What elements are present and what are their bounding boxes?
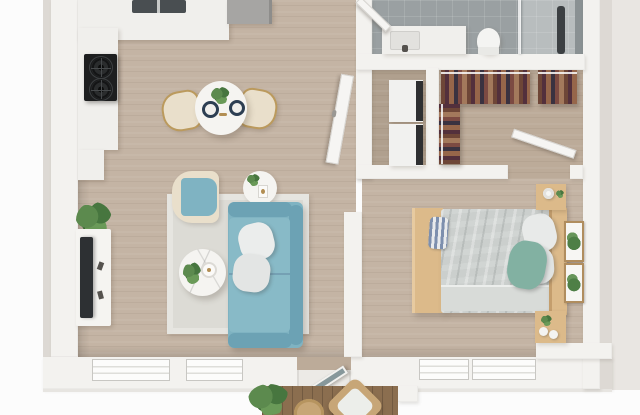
footboard-striped-cushion <box>428 216 449 249</box>
dryer-front-panel <box>416 125 423 165</box>
left-wall <box>51 0 78 357</box>
washer-front-panel <box>416 81 423 121</box>
closet-rack-top-2 <box>538 70 577 104</box>
hallway-door-handle <box>332 110 337 118</box>
nightstand-cup-2 <box>549 330 558 339</box>
toilet-tank <box>478 47 499 55</box>
vanity-faucet <box>402 45 408 52</box>
living-window-2 <box>186 359 243 381</box>
bedroom-window-2 <box>472 359 536 380</box>
framed-print-1 <box>564 221 584 262</box>
kitchen-lower-cabinet <box>78 150 104 180</box>
nightstand-lamp <box>543 188 554 199</box>
nightstand-top-plant <box>556 190 564 198</box>
coffee-table-plant <box>183 262 201 284</box>
living-window-1 <box>92 359 170 381</box>
hall-bath-left-wall <box>356 0 372 179</box>
left-wall-outer-edge <box>43 0 51 357</box>
closet-bedroom-wall <box>356 165 508 179</box>
nightstand-cup-1 <box>539 327 548 336</box>
gas-cooktop <box>84 54 117 101</box>
nightstand-bottom-plant <box>541 315 552 326</box>
exterior-background-right <box>610 0 640 390</box>
sofa-armrest-top <box>228 202 292 217</box>
shower-wall-strip <box>575 0 583 54</box>
kitchen-sink-divider <box>157 0 160 13</box>
shower-floor <box>520 0 583 54</box>
right-wall-outer-edge <box>600 0 612 389</box>
armchair-cushion <box>181 178 217 216</box>
cooktop-burner-2 <box>89 78 113 101</box>
dryer <box>389 124 423 166</box>
right-wall <box>583 0 600 389</box>
tv <box>80 237 93 318</box>
place-setting-right <box>229 100 245 116</box>
closet-rack-top-1 <box>441 70 530 104</box>
framed-print-2 <box>564 263 584 303</box>
balcony-plant <box>248 384 290 415</box>
closet-bedroom-wall-return <box>570 165 583 179</box>
shower-fixture-bar <box>557 6 565 54</box>
floorplan-render <box>0 0 640 415</box>
coffee-table-gold-dot <box>207 268 211 272</box>
bedroom-window-1 <box>419 359 469 380</box>
bottom-wall-floor-shadow <box>78 345 583 357</box>
sofa-backrest <box>289 205 303 345</box>
sofa-armrest-bottom <box>228 333 292 348</box>
bed-sheet-fold <box>441 285 558 311</box>
dining-table-gold-decor <box>219 113 227 116</box>
laundry-closet-divider-wall <box>426 68 439 168</box>
washer <box>389 80 423 122</box>
shower-glass-panel <box>518 0 521 54</box>
wicker-chair-cushion <box>335 386 375 415</box>
cooktop-burner-1 <box>89 56 113 79</box>
bathroom-bottom-wall <box>356 54 585 70</box>
refrigerator <box>227 0 272 24</box>
closet-rack-side <box>439 104 460 164</box>
side-table-gold-item <box>261 189 265 194</box>
place-setting-left <box>202 101 219 118</box>
balcony-side-wall-stub <box>398 386 418 402</box>
living-bedroom-wall <box>344 212 362 357</box>
dining-table-plant <box>211 87 230 104</box>
bedroom-corner-wall <box>536 343 612 359</box>
armchair <box>172 171 219 223</box>
